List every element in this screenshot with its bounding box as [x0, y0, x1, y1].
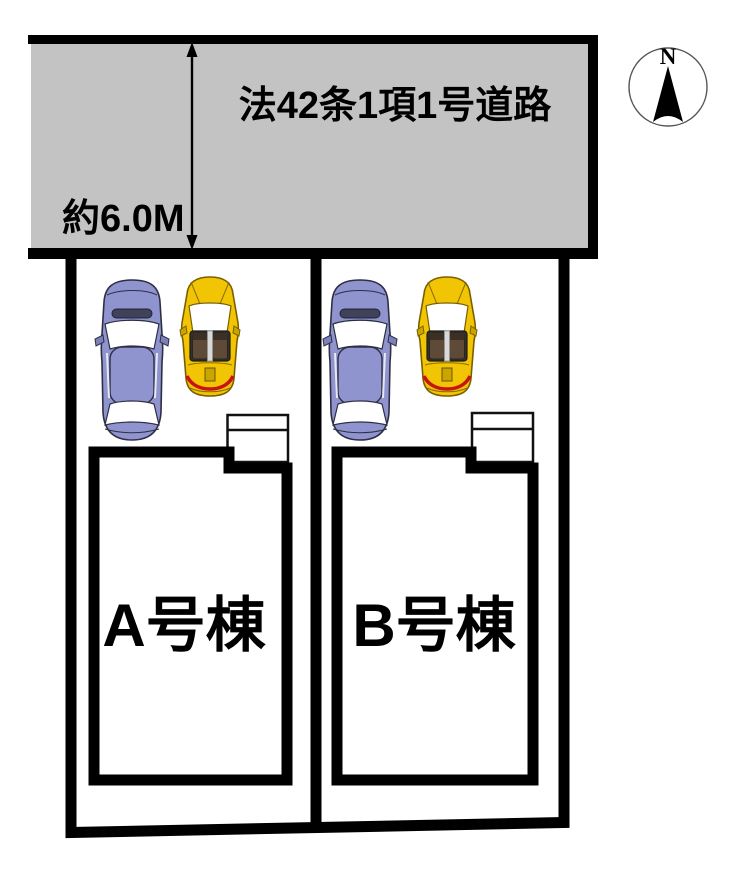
road-label: 法42条1項1号道路: [239, 85, 553, 127]
blue-car-lot-b: [323, 280, 397, 440]
site-plan: 法42条1項1号道路 約6.0M N A号棟 B号棟: [0, 0, 740, 877]
compass: N: [629, 44, 707, 126]
blue-car-lot-a: [95, 280, 169, 440]
compass-north-label: N: [660, 44, 677, 69]
building-a-label: A号棟: [102, 592, 266, 659]
building-b-porch: [472, 413, 533, 462]
lot-a: A号棟: [94, 277, 288, 780]
yellow-car-lot-b: [417, 277, 477, 396]
yellow-car-lot-a: [180, 277, 240, 396]
road-width-label: 約6.0M: [62, 198, 184, 240]
lot-b: B号棟: [323, 277, 533, 780]
site-plan-canvas: 法42条1項1号道路 約6.0M N A号棟 B号棟: [0, 0, 740, 877]
building-a-porch: [228, 415, 289, 462]
building-b-label: B号棟: [352, 592, 516, 659]
